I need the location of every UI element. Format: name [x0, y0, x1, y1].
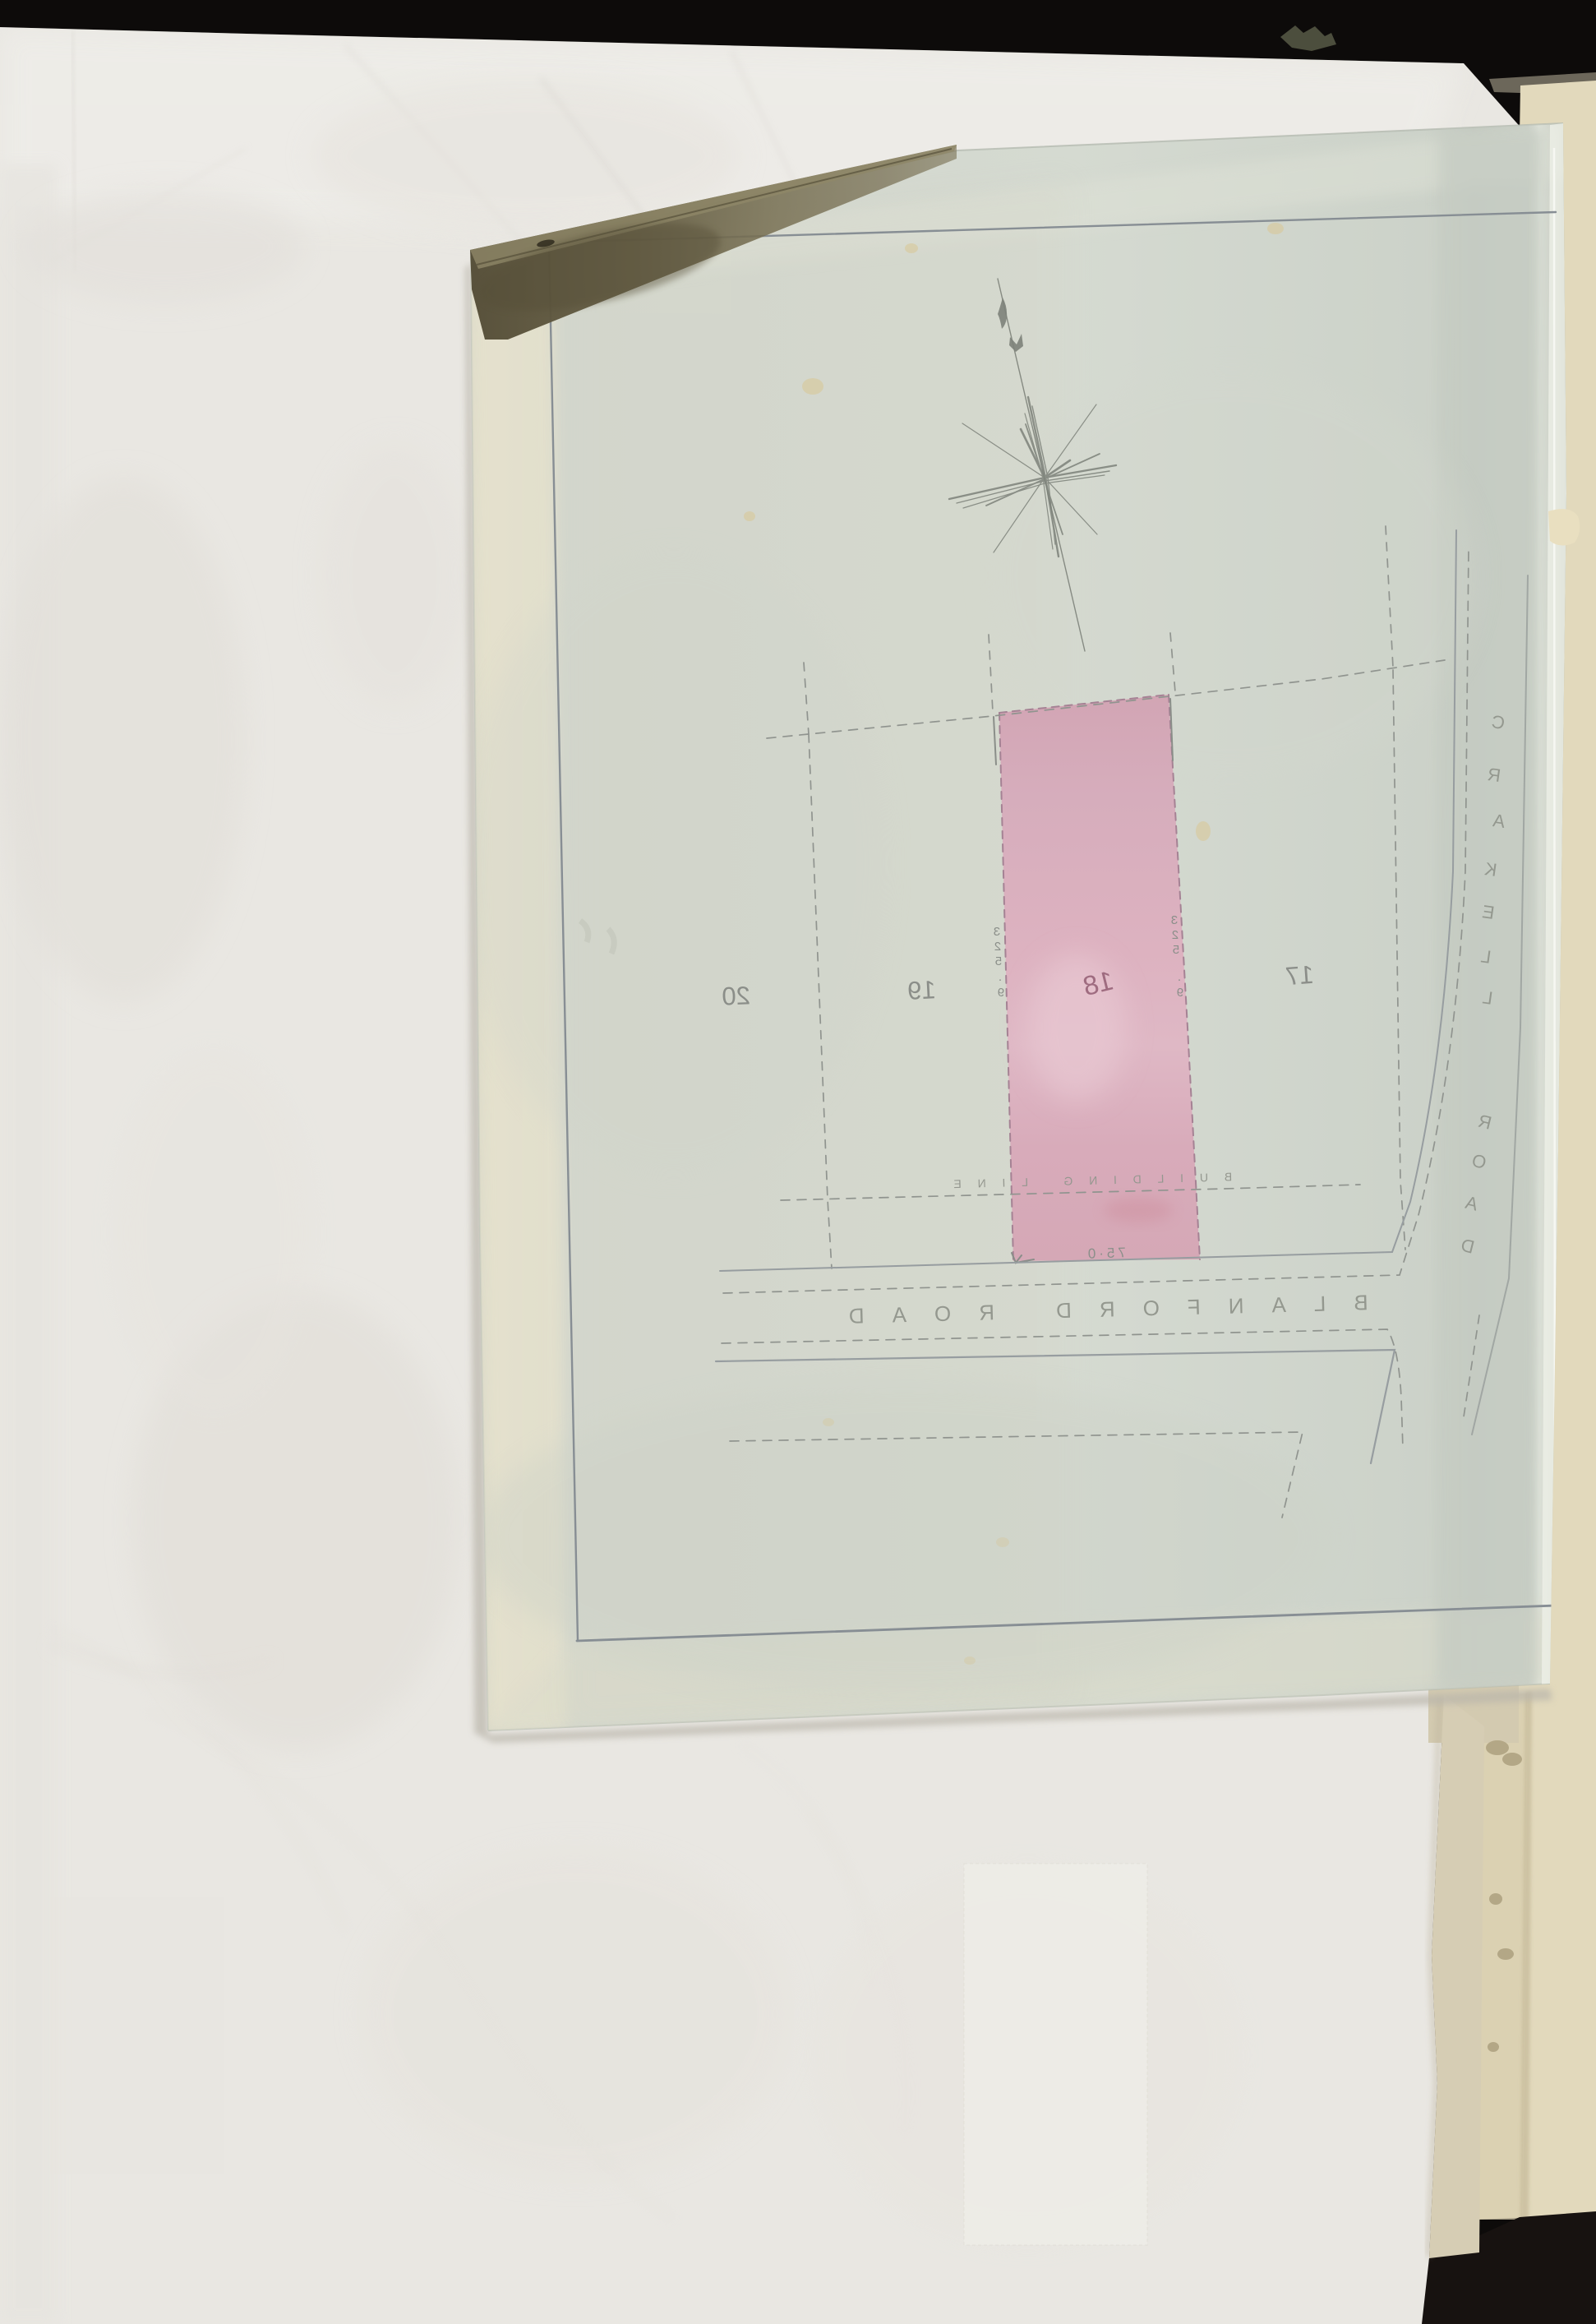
svg-text:9: 9: [1177, 986, 1183, 1000]
svg-text:·: ·: [999, 973, 1003, 986]
svg-text:2: 2: [1172, 928, 1179, 942]
svg-text:5: 5: [1173, 943, 1179, 957]
svg-text:17: 17: [1285, 960, 1315, 991]
svg-text:9: 9: [998, 986, 1004, 1000]
svg-text:75·0: 75·0: [1084, 1245, 1126, 1262]
svg-text:·: ·: [1178, 973, 1182, 986]
svg-text:5: 5: [995, 954, 1002, 968]
svg-text:3: 3: [1171, 913, 1178, 927]
svg-text:19: 19: [906, 975, 936, 1005]
svg-text:2: 2: [994, 940, 1001, 954]
svg-text:20: 20: [722, 981, 751, 1010]
svg-text:3: 3: [994, 925, 1000, 939]
